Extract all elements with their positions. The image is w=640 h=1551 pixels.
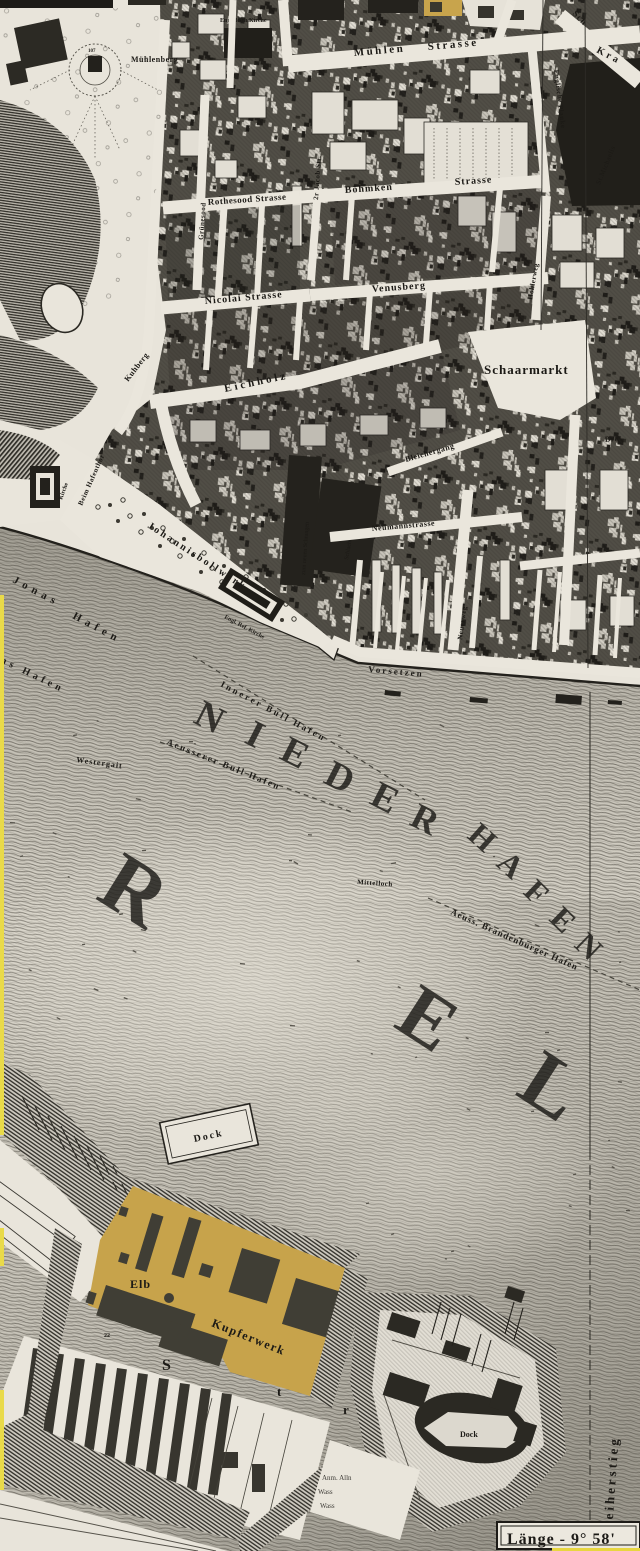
- svg-text:Länge - 9° 58': Länge - 9° 58': [507, 1531, 616, 1548]
- svg-text:Dock: Dock: [460, 1430, 478, 1439]
- svg-text:107: 107: [88, 49, 96, 54]
- svg-text:Bra: Bra: [604, 434, 619, 444]
- svg-text:Schaarmarkt: Schaarmarkt: [484, 362, 569, 377]
- svg-text:Wass: Wass: [318, 1488, 333, 1496]
- svg-text:Wass: Wass: [320, 1502, 335, 1510]
- svg-text:22: 22: [104, 1333, 110, 1339]
- svg-text:r: r: [343, 1402, 349, 1417]
- svg-text:Anm. Alln: Anm. Alln: [322, 1474, 352, 1482]
- svg-text:t: t: [277, 1384, 282, 1399]
- svg-text:S: S: [162, 1357, 171, 1374]
- svg-text:Elb: Elb: [130, 1277, 151, 1291]
- svg-text:Engl.Bisch.Kirche: Engl.Bisch.Kirche: [220, 18, 267, 24]
